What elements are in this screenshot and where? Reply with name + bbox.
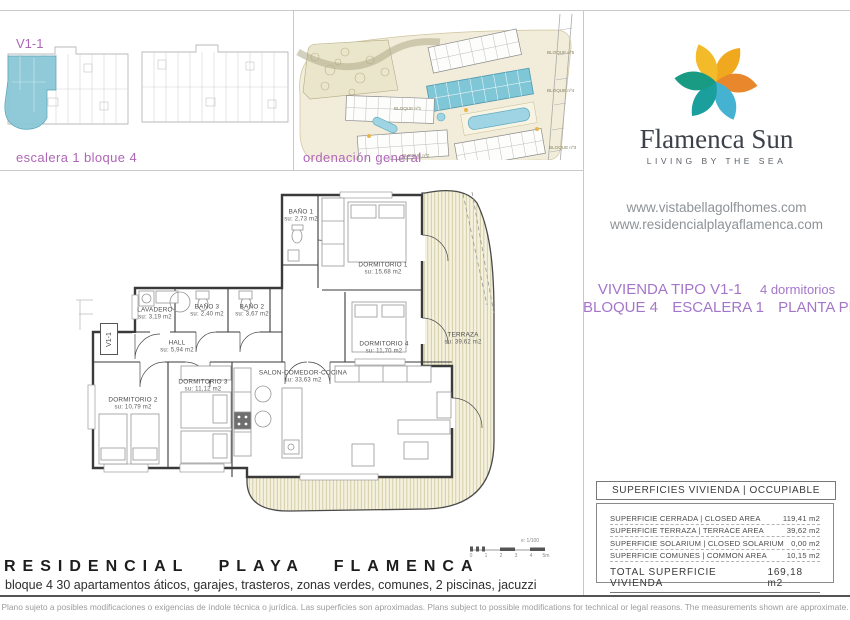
footer-rule	[0, 595, 850, 597]
legal-fine-print: Plano sujeto a posibles modificaciones o…	[0, 602, 850, 612]
siteplan-caption: ordenación general	[303, 150, 422, 165]
room-lavadero: LAVADEROsu: 3,19 m2	[137, 306, 172, 322]
room-bano3: BAÑO 3su: 2,40 m2	[190, 303, 224, 319]
website-link-2[interactable]: www.residencialplayaflamenca.com	[583, 216, 850, 233]
scale-tick-5: 5m	[543, 553, 550, 559]
table-row: SUPERFICIE SOLARIUM | CLOSED SOLARIUM0,0…	[610, 537, 820, 550]
siteplan-drawing	[293, 10, 583, 160]
elevation-caption: escalera 1 bloque 4	[16, 150, 137, 165]
room-dormitorio3: DORMITORIO 3su: 11,12 m2	[178, 378, 227, 394]
areas-table-header: SUPERFICIES VIVIENDA | OCCUPIABLE AREA	[596, 481, 836, 500]
room-terraza: TERRAZAsu: 39,62 m2	[444, 331, 481, 347]
website-link-1[interactable]: www.vistabellagolfhomes.com	[583, 199, 850, 216]
site-block-label-1: BLOQUE nº1	[394, 106, 421, 111]
development-subtitle: bloque 4 30 apartamentos áticos, garajes…	[5, 578, 537, 592]
scale-tick-2: 2	[500, 553, 503, 559]
room-dormitorio4: DORMITORIO 4su: 11,70 m2	[359, 340, 408, 356]
brand-logo	[669, 36, 764, 128]
unit-type: VIVIENDA TIPO V1-1	[598, 281, 742, 298]
room-dormitorio1: DORMITORIO 1su: 15,68 m2	[358, 261, 407, 277]
site-block-label-3: BLOQUE nº3	[549, 145, 576, 150]
table-total-row: TOTAL SUPERFICIE VIVIENDA169,18 m2	[610, 562, 820, 593]
areas-table: SUPERFICIE CERRADA | CLOSED AREA119,41 m…	[596, 503, 834, 583]
room-bano1: BAÑO 1su: 2,73 m2	[284, 208, 318, 224]
table-row: SUPERFICIE TERRAZA | TERRACE AREA39,62 m…	[610, 525, 820, 538]
scale-bar	[470, 547, 545, 552]
room-dormitorio2: DORMITORIO 2su: 10,79 m2	[108, 396, 157, 412]
scale-tick-1: 1	[485, 553, 488, 559]
site-block-label-4: BLOQUE nº4	[547, 88, 574, 93]
development-title: RESIDENCIAL PLAYA FLAMENCA	[4, 558, 480, 576]
room-hall: HALLsu: 5,94 m2	[160, 339, 194, 355]
brochure-page: V1-1 escalera 1 bloque 4	[0, 0, 850, 620]
unit-bedrooms: 4 dormitorios	[760, 282, 835, 297]
scale-tick-3: 3	[515, 553, 518, 559]
site-block-label-5: BLOQUE nº5	[547, 50, 574, 55]
room-bano2: BAÑO 2su: 3,67 m2	[235, 303, 269, 319]
entry-unit-tag: V1-1	[100, 323, 118, 355]
table-row: SUPERFICIE CERRADA | CLOSED AREA119,41 m…	[610, 512, 820, 525]
brand-tagline: LIVING BY THE SEA	[583, 156, 850, 166]
scale-tick-4: 4	[530, 553, 533, 559]
floorplan-drawing	[0, 170, 583, 560]
brand-name: Flamenca Sun	[583, 124, 850, 155]
table-row: SUPERFICIE COMUNES | COMMON AREA10,15 m2	[610, 550, 820, 563]
neighbour-structure	[76, 300, 93, 330]
elevation-drawing	[0, 10, 293, 150]
scale-ratio-label: e: 1/100	[521, 538, 539, 544]
website-links: www.vistabellagolfhomes.com www.residenc…	[583, 199, 850, 233]
unit-info: VIVIENDA TIPO V1-1 4 dormitorios BLOQUE …	[583, 281, 850, 317]
unit-block: BLOQUE 4	[583, 299, 658, 316]
unit-floor: PLANTA PRIMERA	[778, 299, 850, 316]
logo-swirl-icon	[674, 44, 757, 120]
right-column: Flamenca Sun LIVING BY THE SEA www.vista…	[583, 0, 850, 620]
room-salon: SALON-COMEDOR-COCINAsu: 33,63 m2	[259, 369, 347, 385]
unit-stair: ESCALERA 1	[672, 299, 764, 316]
